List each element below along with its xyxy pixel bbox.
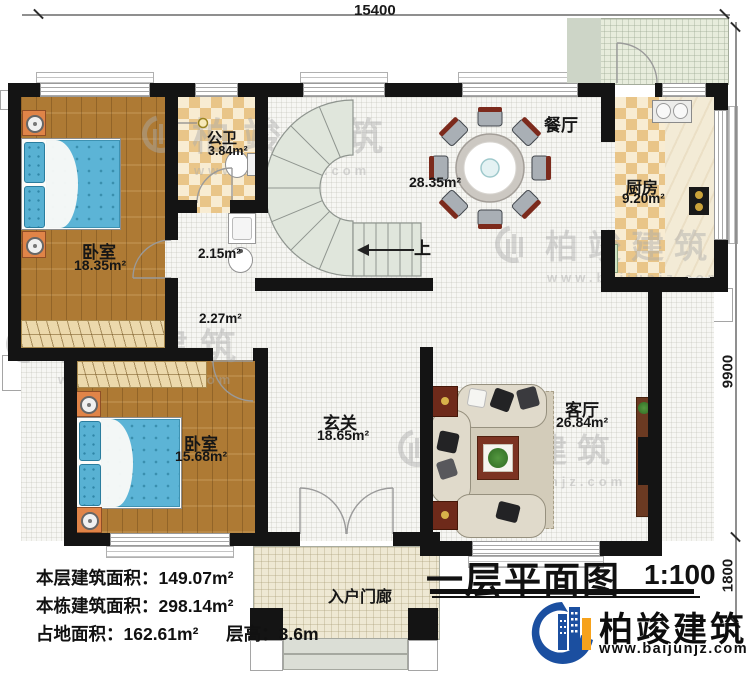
wall-segment (255, 360, 268, 532)
title-underline (430, 589, 694, 594)
window (714, 110, 728, 240)
window (662, 83, 706, 97)
room-area-bath: 3.84m² (208, 144, 248, 158)
wall-segment (8, 348, 213, 361)
wall-segment (255, 532, 300, 546)
stair-up-label: 上 (414, 234, 431, 259)
wall-segment (178, 200, 197, 213)
stat-label: 层高： (226, 624, 279, 644)
room-area-kitchen: 9.20m² (622, 191, 665, 206)
wall-segment (714, 83, 728, 110)
stat-value: 162.61m² (124, 624, 199, 644)
window (40, 83, 150, 97)
staircase (265, 100, 421, 276)
room-area-living: 26.84m² (556, 414, 608, 430)
wall-segment (238, 83, 303, 97)
stat-label: 本栋建筑面积： (36, 596, 159, 616)
table-centerpiece-icon (481, 159, 499, 177)
wall-segment (601, 83, 615, 142)
company-website: www.baijunjz.com (599, 641, 748, 657)
dimension-depth-porch: 1800 (720, 555, 737, 597)
wall-segment (64, 360, 77, 546)
door-arc-bedroom2 (213, 361, 253, 401)
room-area-bedroom1: 18.35m² (74, 257, 126, 273)
wall-segment (710, 277, 728, 292)
window (462, 83, 578, 97)
stat-value: 298.14m² (159, 596, 234, 616)
room-label-dining: 餐厅 (544, 111, 578, 136)
window (303, 83, 385, 97)
stat-label: 占地面积： (36, 624, 124, 644)
porch-pillar (408, 608, 438, 640)
stat-building-area: 本栋建筑面积：298.14m² (36, 593, 233, 618)
wall-segment (165, 97, 178, 240)
room-label-porch: 入户门廊 (328, 583, 392, 607)
wall-segment (385, 83, 462, 97)
door-arc-bathroom (197, 168, 232, 203)
room-area-foyer: 18.65m² (317, 427, 369, 443)
window (110, 533, 230, 546)
wall-segment (8, 83, 21, 360)
wall-segment (150, 83, 195, 97)
door-arc-entrance-left (300, 488, 346, 534)
wall-segment (420, 347, 433, 546)
dining-set (429, 107, 551, 229)
stat-value: 149.07m² (159, 568, 234, 588)
area-hall: 2.27m² (199, 311, 242, 326)
room-area-dining: 28.35m² (409, 174, 461, 190)
stat-footprint-height: 占地面积：162.61m² 层高：3.6m (36, 621, 319, 646)
wall-segment (165, 278, 178, 348)
wall-segment (655, 83, 662, 97)
stat-value: 3.6m (279, 624, 319, 644)
company-logo-icon (520, 598, 598, 666)
wall-segment (648, 288, 662, 556)
wall-segment (255, 97, 268, 213)
door-arc-kitchen (617, 43, 657, 83)
wall-segment (255, 278, 433, 291)
dimension-width: 15400 (354, 2, 396, 19)
stat-label: 本层建筑面积： (36, 568, 159, 588)
dimension-depth-main: 9900 (720, 351, 737, 393)
wall-segment (64, 533, 110, 546)
floor-plan-canvas: 柏竣建筑 www.baijunjz.com 柏竣建筑 www.baijunjz.… (0, 0, 750, 673)
stat-floor-area: 本层建筑面积：149.07m² (36, 565, 233, 590)
area-vanity: 2.15m² (198, 246, 241, 261)
wall-segment (230, 200, 268, 213)
window (195, 83, 238, 97)
door-arc-bedroom1 (133, 240, 171, 278)
room-area-bedroom2: 15.68m² (175, 448, 227, 464)
door-arc-entrance-right (347, 488, 393, 534)
wall-segment (601, 230, 615, 292)
plan-scale: 1:100 (644, 559, 716, 591)
